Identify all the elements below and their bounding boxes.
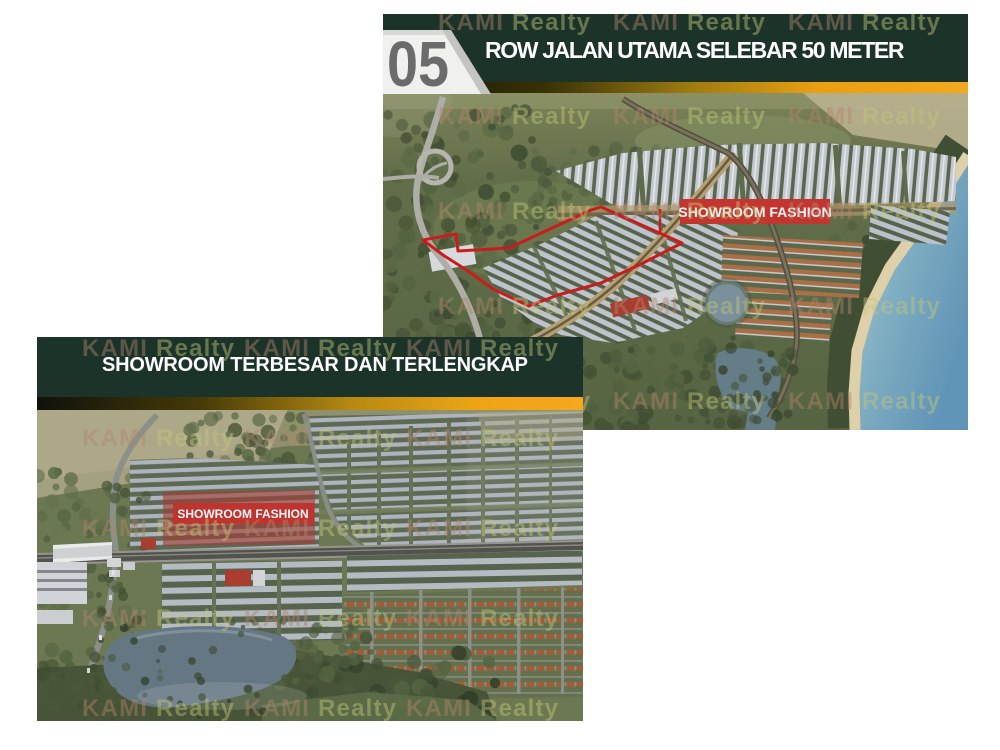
- svg-text:05: 05: [387, 28, 449, 100]
